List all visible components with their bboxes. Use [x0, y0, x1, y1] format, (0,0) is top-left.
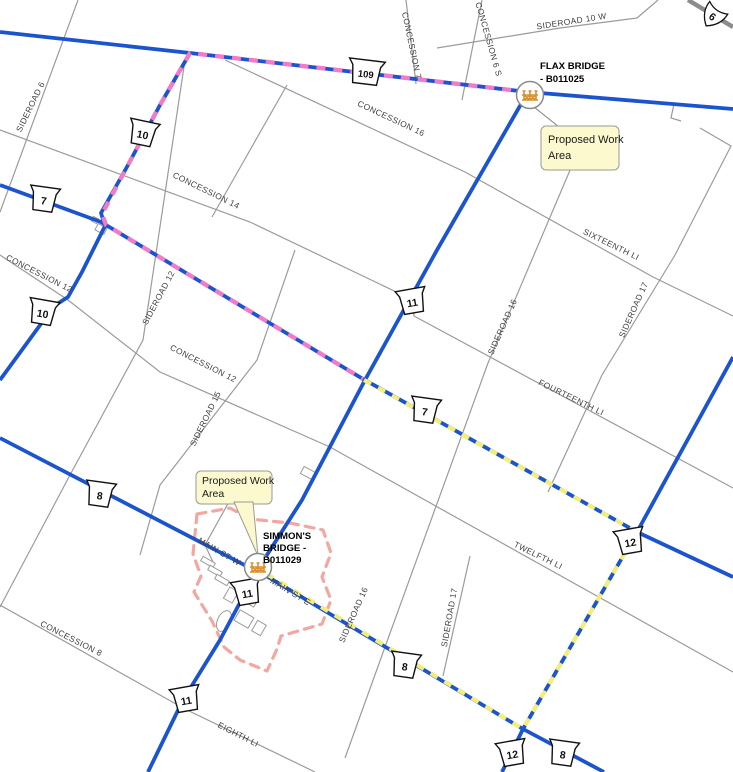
shield-number: 12 [624, 537, 638, 551]
callout-box [541, 126, 619, 170]
road-label: CONCESSION 16 [356, 98, 427, 138]
road-label: SIDEROAD 15 [188, 390, 223, 448]
callout-text: Proposed Work [202, 475, 275, 487]
highway-shield-icon: 10 [126, 118, 160, 148]
road-label: EIGHTH LI [216, 720, 260, 749]
road-labels: SIDEROAD 6 CONCESSION 6 S CONCESSION 7 S… [5, 1, 650, 749]
road-label: SIDEROAD 10 W [536, 11, 608, 32]
road-label: SIDEROAD 6 [14, 80, 47, 134]
road-label: MAIN ST W [196, 535, 242, 567]
road-label: SIDEROAD 12 [140, 269, 177, 326]
callout-text: Area [548, 150, 572, 162]
highway-shield-icon: 8 [83, 480, 116, 508]
highway-shield-icon: 10 [26, 298, 60, 327]
road-label: CONCESSION 7 [400, 11, 424, 80]
highway-shield-icon: 8 [388, 651, 421, 679]
highway-shield-icon: 12 [495, 739, 529, 768]
highway-shield-icon: 11 [230, 578, 264, 607]
flax-bridge-label: - B011025 [540, 74, 585, 85]
callout-pointer [234, 502, 258, 556]
highway-shield-icon: 12 [613, 527, 647, 556]
highway-shield-icon: 109 [347, 58, 386, 86]
highway-shield-icon: 11 [395, 287, 429, 316]
highway-shield-icon: 7 [27, 185, 60, 213]
map-canvas: SIDEROAD 6 CONCESSION 6 S CONCESSION 7 S… [0, 0, 733, 772]
minor-road-network [0, 0, 733, 772]
building [234, 610, 254, 628]
simmons-bridge-label: BRIDGE - [263, 543, 306, 554]
flax-bridge-label: FLAX BRIDGE [540, 61, 606, 72]
simmons-bridge-label: B011029 [263, 555, 301, 566]
road-concession-12 [0, 255, 733, 672]
building [252, 620, 267, 635]
callout-text: Proposed Work [548, 134, 624, 146]
detour-route-simmons [260, 380, 637, 729]
shield-number: 12 [506, 749, 520, 763]
road-label: SIXTEENTH LI [582, 226, 641, 262]
shield-number: 11 [406, 297, 419, 311]
road-label: CONCESSION 6 S [473, 1, 504, 78]
highway-shield-icon: 11 [169, 685, 203, 714]
highway-shield-icon: 8 [546, 739, 579, 767]
detour-map: SIDEROAD 6 CONCESSION 6 S CONCESSION 7 S… [0, 0, 733, 772]
shield-number: 109 [357, 69, 374, 82]
road-sideroad-12 [0, 60, 185, 607]
simmons-bridge-label: SIMMON'S [263, 531, 312, 542]
road-hwy-12 [502, 357, 733, 772]
road-label: CONCESSION 12 [5, 252, 75, 294]
road-concession-16 [225, 60, 733, 316]
shield-number: 11 [180, 695, 193, 709]
shield-number: 10 [36, 308, 50, 322]
road-label: FOURTEENTH LI [537, 377, 606, 417]
road-label: CONCESSION 14 [171, 170, 241, 211]
callout-text: Area [202, 488, 224, 500]
road-label: SIDEROAD 16 [486, 297, 519, 356]
bridge-icon [522, 91, 538, 100]
road-label: CONCESSION 8 [39, 618, 104, 658]
building [208, 565, 223, 576]
road-label: TWELFTH LI [512, 539, 564, 571]
road-concession-14 [0, 130, 733, 488]
building [201, 556, 216, 567]
flax-bridge-marker [517, 82, 544, 109]
shield-number: 11 [241, 588, 254, 602]
building [215, 574, 230, 585]
road-label: SIDEROAD 17 [617, 280, 650, 339]
road-label: CONCESSION 12 [169, 342, 239, 384]
flax-callout: Proposed Work Area [534, 107, 624, 170]
road-label: MAIN ST E [269, 575, 313, 607]
road-stub [671, 104, 681, 121]
road-sideroad-16 [345, 142, 582, 758]
callout-leader-line [534, 107, 559, 127]
